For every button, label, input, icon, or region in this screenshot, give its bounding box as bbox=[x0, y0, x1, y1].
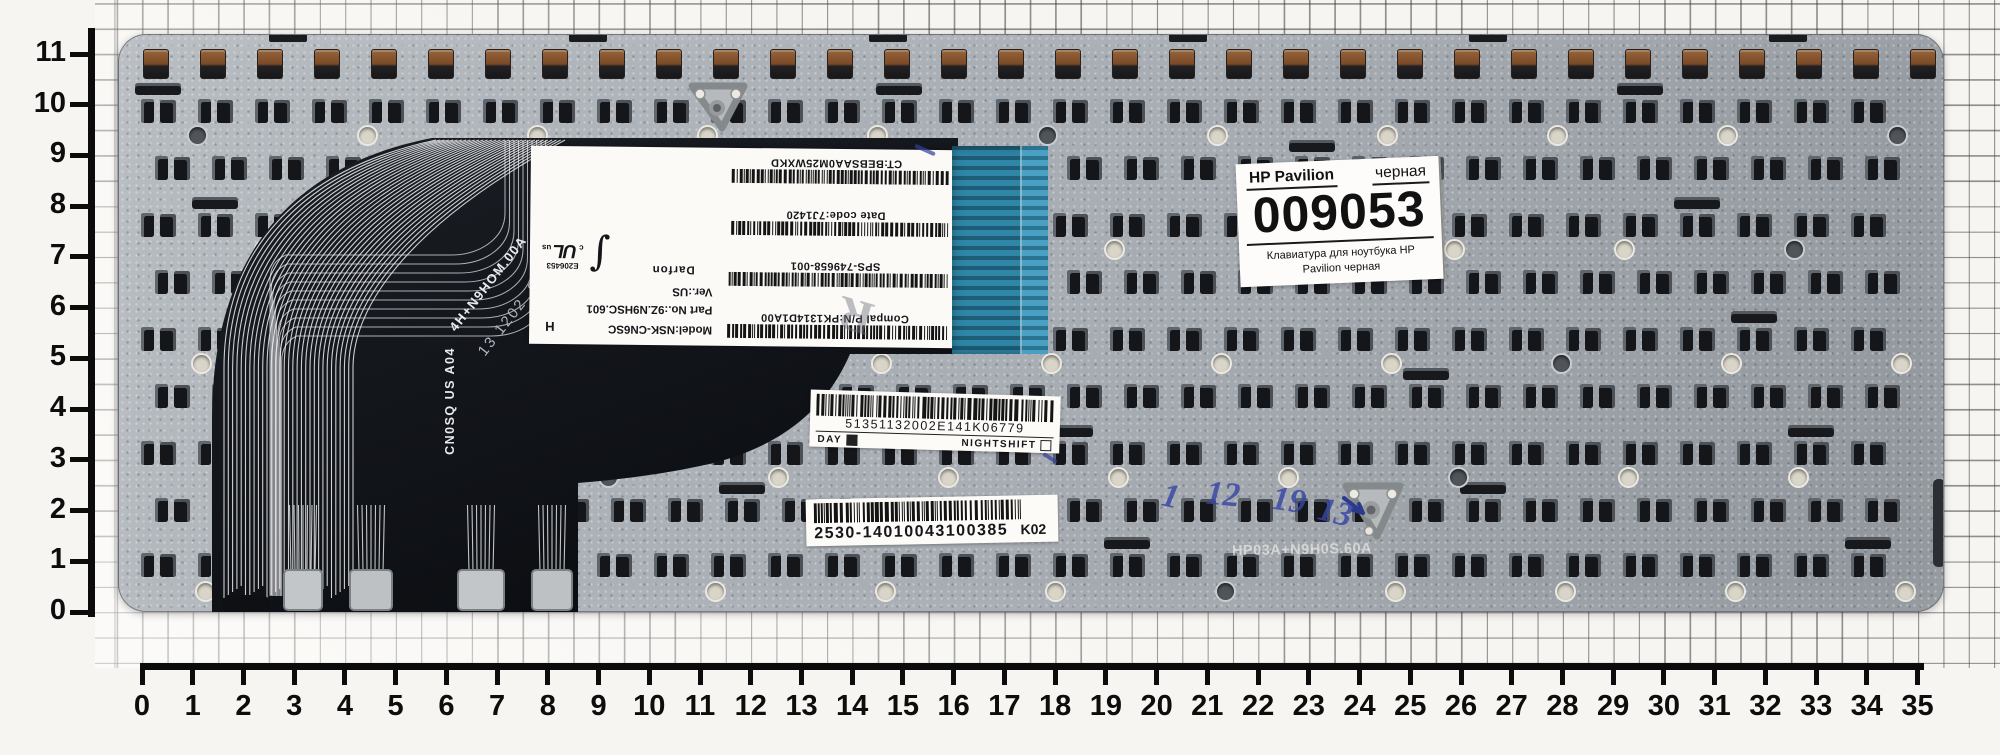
key-clip bbox=[1110, 327, 1123, 351]
vertical-ruler-tick bbox=[70, 356, 89, 361]
key-clip bbox=[1124, 384, 1137, 408]
barcode-bar bbox=[827, 325, 830, 339]
key-clip bbox=[1827, 385, 1843, 408]
key-clip bbox=[160, 100, 176, 123]
barcode-bar bbox=[807, 273, 810, 287]
key-clip bbox=[1072, 554, 1088, 577]
key-clip bbox=[383, 156, 396, 180]
barcode-bar bbox=[884, 325, 885, 339]
key-clip bbox=[1086, 385, 1102, 408]
barcode-bar bbox=[924, 326, 925, 340]
horizontal-ruler-tick bbox=[1408, 668, 1413, 685]
key-clip bbox=[1680, 213, 1693, 237]
key-clip bbox=[1086, 271, 1102, 294]
key-clip bbox=[597, 99, 610, 123]
barcode-bar bbox=[734, 272, 737, 286]
horizontal-ruler-tick bbox=[1763, 668, 1768, 685]
key-clip bbox=[269, 156, 282, 180]
plate-hole bbox=[600, 469, 617, 486]
barcode-bar bbox=[926, 223, 928, 237]
plate-hole bbox=[1383, 355, 1400, 372]
key-clip bbox=[1338, 441, 1351, 465]
key-clip bbox=[1110, 213, 1123, 237]
key-clip bbox=[1851, 99, 1864, 123]
mount-hook bbox=[257, 49, 283, 79]
horizontal-ruler-tick bbox=[850, 668, 855, 685]
key-clip bbox=[1338, 327, 1351, 351]
barcode-bar bbox=[777, 221, 780, 235]
barcode-bar bbox=[821, 273, 824, 287]
horizontal-ruler-tick bbox=[1459, 668, 1464, 685]
key-clip bbox=[1528, 214, 1544, 237]
shop-sku: 009053 bbox=[1245, 183, 1434, 246]
barcode-bar bbox=[742, 221, 745, 235]
key-clip bbox=[345, 271, 361, 294]
key-clip bbox=[1794, 441, 1807, 465]
key-clip bbox=[1409, 384, 1422, 408]
barcode-bar bbox=[841, 273, 844, 287]
key-clip bbox=[1072, 442, 1088, 465]
key-clip bbox=[1870, 100, 1886, 123]
key-clip bbox=[1428, 385, 1444, 408]
barcode-bar bbox=[925, 274, 926, 288]
key-clip bbox=[1181, 384, 1194, 408]
key-clip bbox=[160, 328, 176, 351]
key-clip bbox=[459, 385, 475, 408]
key-clip bbox=[1642, 442, 1658, 465]
barcode-bar bbox=[965, 500, 967, 520]
key-clip bbox=[483, 213, 496, 237]
barcode-bar bbox=[865, 274, 868, 288]
key-clip bbox=[388, 100, 404, 123]
key-clip bbox=[1129, 442, 1145, 465]
plate-hole bbox=[1213, 355, 1230, 372]
plate-hole bbox=[367, 583, 384, 600]
plate-hole bbox=[1039, 127, 1056, 144]
key-clip bbox=[1623, 553, 1636, 577]
plate-hole bbox=[699, 127, 716, 144]
key-clip bbox=[616, 554, 632, 577]
barcode-bar bbox=[747, 272, 748, 286]
key-clip bbox=[1642, 100, 1658, 123]
key-clip bbox=[573, 499, 589, 522]
barcode-bar bbox=[986, 398, 988, 420]
key-clip bbox=[687, 499, 703, 522]
barcode-bar bbox=[806, 325, 808, 339]
barcode-bar bbox=[865, 170, 868, 184]
barcode-bar bbox=[895, 222, 898, 236]
barcode-bar bbox=[928, 171, 931, 185]
plate-hole bbox=[1387, 583, 1404, 600]
barcode-bar bbox=[857, 222, 859, 236]
key-clip bbox=[274, 328, 290, 351]
key-clip bbox=[255, 327, 268, 351]
key-clip bbox=[1428, 499, 1444, 522]
barcode-bar bbox=[895, 326, 896, 340]
key-clip bbox=[1751, 498, 1764, 522]
barcode-bar bbox=[830, 394, 834, 416]
barcode-bar bbox=[735, 324, 738, 338]
key-clip bbox=[1129, 214, 1145, 237]
edge-tab bbox=[1469, 34, 1507, 42]
key-clip bbox=[1243, 100, 1259, 123]
barcode-bar bbox=[777, 324, 778, 338]
key-clip bbox=[768, 441, 781, 465]
key-clip bbox=[559, 442, 575, 465]
key-clip bbox=[1599, 385, 1615, 408]
barcode-bar bbox=[887, 326, 890, 340]
mount-hook bbox=[599, 49, 625, 79]
barcode-bar bbox=[748, 324, 751, 338]
key-clip bbox=[1124, 156, 1137, 180]
barcode-bar bbox=[768, 169, 769, 183]
key-clip bbox=[198, 213, 211, 237]
barcode-bar bbox=[922, 223, 924, 237]
key-clip bbox=[1072, 100, 1088, 123]
key-clip bbox=[1566, 441, 1579, 465]
barcode-bar bbox=[919, 326, 922, 340]
mount-hook bbox=[713, 49, 739, 79]
vertical-ruler-number: 10 bbox=[16, 87, 66, 120]
key-clip bbox=[1851, 553, 1864, 577]
key-clip bbox=[231, 271, 247, 294]
key-clip bbox=[1813, 328, 1829, 351]
plate-hole bbox=[703, 355, 720, 372]
horizontal-ruler-tick bbox=[190, 668, 195, 685]
order-code: 2530-14010043100385 bbox=[814, 522, 1008, 544]
key-clip bbox=[1200, 157, 1216, 180]
key-clip bbox=[654, 99, 667, 123]
barcode-bar bbox=[907, 501, 909, 521]
mount-hook bbox=[314, 49, 340, 79]
key-clip bbox=[1642, 214, 1658, 237]
vertical-ruler-number: 2 bbox=[16, 493, 66, 526]
barcode-bar bbox=[892, 326, 893, 340]
barcode-bar bbox=[1001, 500, 1004, 520]
barcode-bar bbox=[949, 501, 952, 521]
key-clip bbox=[782, 384, 795, 408]
key-clip bbox=[1884, 499, 1900, 522]
key-clip bbox=[1452, 441, 1465, 465]
key-clip bbox=[1865, 384, 1878, 408]
barcode-bar bbox=[797, 221, 798, 235]
barcode-bar bbox=[942, 223, 943, 237]
barcode-bar bbox=[815, 170, 817, 184]
mount-hook bbox=[371, 49, 397, 79]
barcode-bar bbox=[757, 324, 759, 338]
key-clip bbox=[231, 385, 247, 408]
barcode-bar bbox=[929, 326, 930, 340]
barcode-bar bbox=[752, 169, 755, 183]
key-clip bbox=[1471, 328, 1487, 351]
key-clip bbox=[1300, 100, 1316, 123]
horizontal-ruler-tick bbox=[1509, 668, 1514, 685]
barcode-bar bbox=[864, 222, 865, 236]
mount-hook bbox=[1226, 49, 1252, 79]
plate-hole bbox=[877, 583, 894, 600]
key-clip bbox=[540, 553, 553, 577]
key-clip bbox=[269, 498, 282, 522]
key-clip bbox=[312, 553, 325, 577]
barcode-bar bbox=[908, 274, 909, 288]
barcode-bar bbox=[774, 273, 777, 287]
barcode-bar bbox=[761, 169, 764, 183]
horizontal-ruler-tick bbox=[1306, 668, 1311, 685]
barcode-bar bbox=[808, 170, 810, 184]
key-clip bbox=[1580, 156, 1593, 180]
key-clip bbox=[174, 271, 190, 294]
barcode-bar bbox=[870, 170, 872, 184]
barcode-bar bbox=[797, 170, 799, 184]
key-clip bbox=[1224, 441, 1237, 465]
plate-hole bbox=[1790, 469, 1807, 486]
horizontal-ruler-tick bbox=[140, 668, 145, 685]
key-clip bbox=[725, 384, 738, 408]
plate-hole bbox=[1719, 127, 1736, 144]
plate-hole bbox=[1549, 127, 1566, 144]
barcode-bar bbox=[765, 169, 766, 183]
barcode-bar bbox=[756, 272, 758, 286]
key-clip bbox=[1884, 157, 1900, 180]
key-clip bbox=[1466, 498, 1479, 522]
barcode-bar bbox=[930, 274, 933, 288]
key-clip-bar bbox=[1104, 537, 1150, 549]
key-clip bbox=[1186, 442, 1202, 465]
key-clip bbox=[1808, 270, 1821, 294]
key-clip bbox=[141, 441, 154, 465]
barcode-bar bbox=[834, 222, 836, 236]
key-clip bbox=[768, 553, 781, 577]
barcode-bar bbox=[752, 324, 753, 338]
key-clip bbox=[1485, 385, 1501, 408]
order-suffix: K02 bbox=[1020, 521, 1046, 537]
key-clip bbox=[1656, 385, 1672, 408]
vertical-ruler-bar bbox=[88, 28, 95, 617]
horizontal-ruler-tick bbox=[748, 668, 753, 685]
barcode-bar bbox=[1014, 399, 1019, 421]
mount-hook bbox=[1397, 49, 1423, 79]
barcode-bar bbox=[885, 171, 887, 185]
mount-hook bbox=[1340, 49, 1366, 79]
key-clip bbox=[597, 441, 610, 465]
barcode-bar bbox=[828, 222, 829, 236]
barcode-bar bbox=[947, 223, 948, 237]
key-clip bbox=[882, 99, 895, 123]
barcode-bar bbox=[861, 222, 862, 236]
plate-hole bbox=[533, 355, 550, 372]
key-clip bbox=[1200, 271, 1216, 294]
key-clip bbox=[654, 553, 667, 577]
barcode-bar bbox=[989, 399, 993, 421]
key-clip bbox=[1471, 214, 1487, 237]
barcode-bar bbox=[860, 395, 864, 417]
key-clip bbox=[1129, 328, 1145, 351]
key-clip bbox=[1300, 328, 1316, 351]
key-clip bbox=[1737, 553, 1750, 577]
key-clip bbox=[1466, 156, 1479, 180]
horizontal-ruler-tick bbox=[1560, 668, 1565, 685]
key-clip bbox=[1580, 384, 1593, 408]
key-clip bbox=[331, 214, 347, 237]
blue-connector-film bbox=[952, 146, 1048, 354]
key-clip bbox=[326, 156, 339, 180]
mount-hook bbox=[200, 49, 226, 79]
edge-tab bbox=[1769, 34, 1807, 42]
key-clip bbox=[1865, 156, 1878, 180]
key-clip bbox=[673, 100, 689, 123]
plate-hole bbox=[1553, 355, 1570, 372]
barcode-bar bbox=[771, 273, 773, 287]
barcode-bar bbox=[946, 397, 949, 419]
barcode-bar bbox=[784, 169, 787, 183]
barcode-bar bbox=[848, 222, 851, 236]
plate-hole bbox=[869, 127, 886, 144]
key-clip bbox=[1452, 327, 1465, 351]
barcode-bar bbox=[795, 325, 797, 339]
key-clip bbox=[1637, 156, 1650, 180]
key-clip bbox=[1566, 213, 1579, 237]
key-clip bbox=[1053, 213, 1066, 237]
barcode-bar bbox=[981, 500, 983, 520]
key-clip bbox=[1542, 385, 1558, 408]
barcode-bar bbox=[851, 395, 855, 417]
key-clip bbox=[155, 498, 168, 522]
barcode-bar bbox=[738, 221, 741, 235]
key-clip bbox=[1713, 385, 1729, 408]
plate-hole bbox=[1786, 241, 1803, 258]
barcode-bar bbox=[828, 273, 830, 287]
key-clip-bar bbox=[876, 83, 922, 95]
key-clip bbox=[958, 100, 974, 123]
key-clip bbox=[1414, 442, 1430, 465]
barcode-bar bbox=[940, 501, 942, 521]
key-clip bbox=[782, 498, 795, 522]
barcode-bar bbox=[750, 221, 751, 235]
key-clip bbox=[559, 100, 575, 123]
key-clip bbox=[1129, 100, 1145, 123]
key-clip bbox=[231, 157, 247, 180]
barcode-bar bbox=[765, 273, 767, 287]
key-clip bbox=[1509, 213, 1522, 237]
barcode-bar bbox=[809, 221, 812, 235]
plate-hole bbox=[1889, 127, 1906, 144]
key-clip bbox=[402, 271, 418, 294]
key-clip bbox=[198, 327, 211, 351]
key-clip bbox=[516, 385, 532, 408]
barcode-bar bbox=[790, 221, 793, 235]
key-clip bbox=[616, 442, 632, 465]
barcode-bar bbox=[837, 170, 840, 184]
barcode-bar bbox=[732, 324, 734, 338]
key-clip bbox=[611, 384, 624, 408]
horizontal-ruler-tick bbox=[1002, 668, 1007, 685]
barcode-bar bbox=[891, 502, 894, 522]
ul-certification: ∫ E206453 c UL us bbox=[542, 238, 611, 271]
key-clip bbox=[160, 554, 176, 577]
barcode-bar bbox=[916, 326, 917, 340]
ul-file-number: E206453 bbox=[547, 261, 579, 270]
barcode-bar bbox=[879, 325, 882, 339]
order-sticker: 2530-14010043100385 K02 bbox=[806, 495, 1059, 547]
barcode-bar bbox=[839, 273, 840, 287]
cable-marking-vertical: CN0SQ US A04 bbox=[443, 321, 457, 481]
key-clip bbox=[369, 441, 382, 465]
key-clip bbox=[274, 100, 290, 123]
barcode-bar bbox=[876, 170, 879, 184]
key-clip bbox=[1737, 213, 1750, 237]
vertical-ruler-number: 0 bbox=[16, 594, 66, 627]
barcode-bar bbox=[946, 171, 949, 185]
plate-hole bbox=[197, 583, 214, 600]
key-clip bbox=[440, 498, 453, 522]
key-clip bbox=[1466, 384, 1479, 408]
barcode-bar bbox=[867, 502, 870, 522]
barcode-bar bbox=[900, 274, 903, 288]
barcode-bar bbox=[995, 500, 997, 520]
key-clip-bar bbox=[1460, 482, 1506, 494]
key-clip bbox=[1699, 214, 1715, 237]
barcode-bar bbox=[870, 222, 871, 236]
day-checkbox bbox=[846, 435, 857, 446]
key-clip bbox=[212, 498, 225, 522]
key-clip bbox=[1509, 441, 1522, 465]
barcode-bar bbox=[785, 221, 788, 235]
key-clip bbox=[274, 554, 290, 577]
key-clip bbox=[730, 100, 746, 123]
plate-hole bbox=[1450, 469, 1467, 486]
order-barcode bbox=[814, 499, 1022, 523]
barcode-bar bbox=[1054, 400, 1055, 422]
barcode-bar bbox=[818, 325, 821, 339]
factory-label-right: Model:NSK-CN6SC H Part No.:9Z.N9HSC.601 … bbox=[539, 154, 714, 338]
key-clip bbox=[155, 156, 168, 180]
horizontal-ruler-tick bbox=[698, 668, 703, 685]
key-clip bbox=[901, 554, 917, 577]
barcode-bar bbox=[813, 170, 814, 184]
barcode-bar bbox=[993, 399, 998, 421]
key-clip bbox=[1485, 157, 1501, 180]
barcode-bar bbox=[947, 274, 948, 288]
key-clip bbox=[198, 553, 211, 577]
plate-hole bbox=[1616, 241, 1633, 258]
mount-hook bbox=[1283, 49, 1309, 79]
horizontal-ruler-tick bbox=[1053, 668, 1058, 685]
vertical-ruler-tick bbox=[70, 610, 89, 615]
key-clip bbox=[1680, 99, 1693, 123]
key-clip bbox=[1642, 328, 1658, 351]
shop-label: HP Pavilion черная 009053 Клавиатура для… bbox=[1236, 156, 1446, 287]
key-clip bbox=[288, 157, 304, 180]
key-clip bbox=[1642, 554, 1658, 577]
mount-hook bbox=[1682, 49, 1708, 79]
barcode-bar bbox=[900, 222, 903, 236]
horizontal-ruler-tick bbox=[1154, 668, 1159, 685]
edge-tab bbox=[869, 34, 907, 42]
key-clip bbox=[1395, 99, 1408, 123]
key-clip bbox=[217, 214, 233, 237]
plate-hole bbox=[1620, 469, 1637, 486]
barcode-bar bbox=[940, 274, 943, 288]
barcode-bar bbox=[765, 324, 767, 338]
key-clip bbox=[1452, 553, 1465, 577]
key-clip bbox=[1585, 554, 1601, 577]
key-clip bbox=[1352, 384, 1365, 408]
barcode-bar bbox=[846, 503, 849, 523]
barcode-bar bbox=[1015, 499, 1016, 519]
barcode-bar bbox=[802, 170, 804, 184]
horizontal-ruler-tick bbox=[1814, 668, 1819, 685]
barcode-bar bbox=[757, 221, 758, 235]
